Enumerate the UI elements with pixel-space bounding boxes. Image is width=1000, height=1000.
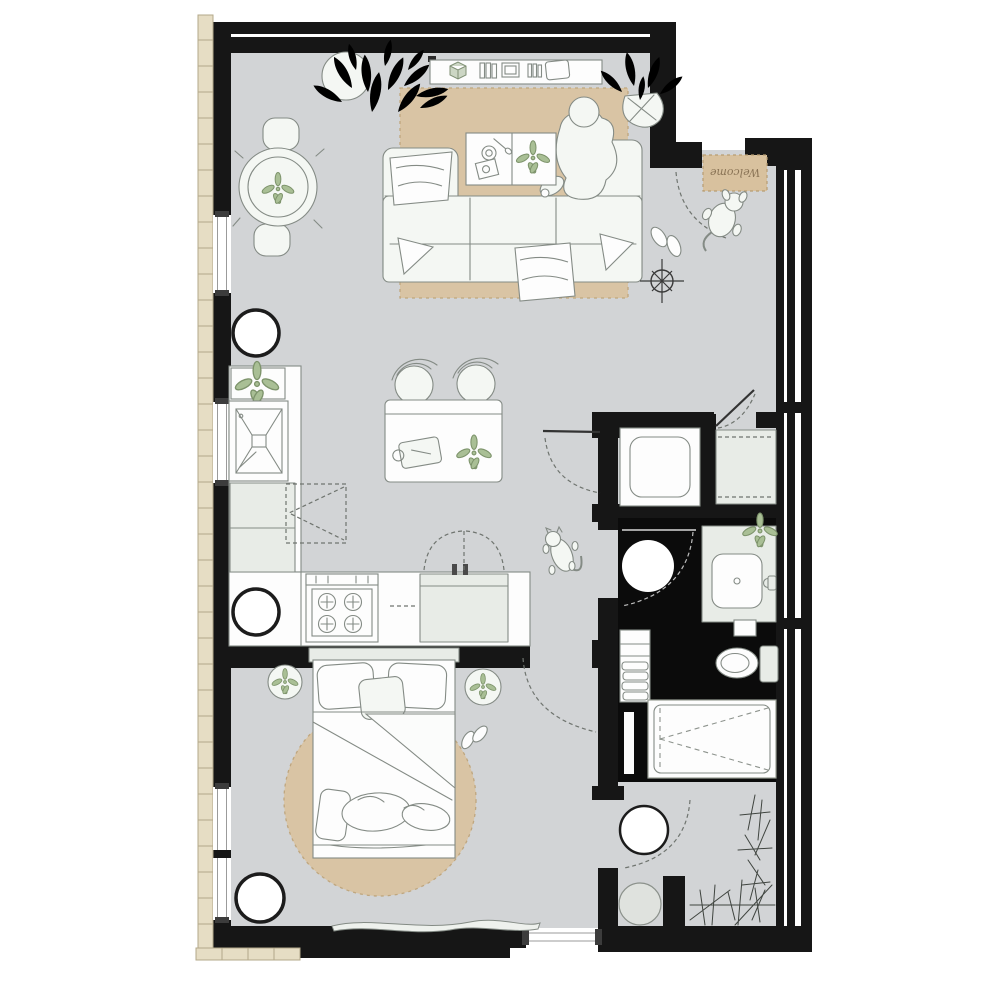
base-cabinet	[230, 483, 295, 528]
round-floor-stool	[233, 310, 279, 356]
floor-pouf	[236, 874, 284, 922]
closet-door-leaf	[543, 431, 600, 432]
washing-machine	[630, 437, 690, 497]
towel-shelf	[620, 630, 650, 702]
floor-plan-page: Welcome	[0, 0, 1000, 1000]
window-bedroom-1	[213, 787, 231, 850]
double-bed	[309, 648, 459, 858]
books	[480, 63, 497, 78]
closet-stub-wall	[663, 876, 685, 932]
round-floor-stool	[233, 589, 279, 635]
apartment-floor-plan: Welcome	[0, 0, 1000, 1000]
cat-head	[546, 532, 561, 547]
decor-cube	[450, 62, 466, 79]
welcome-mat-label: Welcome	[709, 166, 760, 179]
sideboard-shelf	[428, 56, 602, 84]
base-cabinet	[230, 528, 295, 572]
welcome-mat: Welcome	[703, 155, 767, 191]
bar-stool	[395, 366, 433, 404]
throw-blanket	[390, 152, 452, 205]
round-fixture	[620, 806, 668, 854]
throw-blanket	[515, 243, 575, 301]
books-2	[528, 64, 542, 77]
person-head	[569, 97, 599, 127]
window-bedroom-2	[213, 858, 231, 920]
cushion-decor	[545, 60, 570, 80]
ceiling-light-disc	[622, 540, 674, 592]
wall-niche	[624, 712, 634, 774]
appliance-cabinet	[716, 430, 776, 504]
counter-plant-box	[231, 362, 285, 406]
window-kitchen	[213, 402, 231, 483]
toilet-tank	[760, 646, 778, 682]
toilet-bowl	[716, 648, 758, 678]
cooktop-stove	[306, 574, 378, 642]
coffee-table	[466, 133, 556, 185]
vanity-sink	[702, 513, 779, 636]
kitchen-sink	[229, 401, 288, 481]
vanity-bin	[734, 620, 756, 636]
picture-frame	[502, 63, 519, 77]
dining-chair	[263, 118, 299, 150]
bathtub	[648, 700, 776, 778]
south-window	[522, 928, 602, 946]
dining-chair	[254, 224, 290, 256]
bar-table	[385, 400, 502, 482]
washer-drum	[619, 883, 661, 925]
window-dining	[213, 215, 231, 293]
bar-stool	[457, 365, 495, 403]
mug	[541, 189, 549, 197]
